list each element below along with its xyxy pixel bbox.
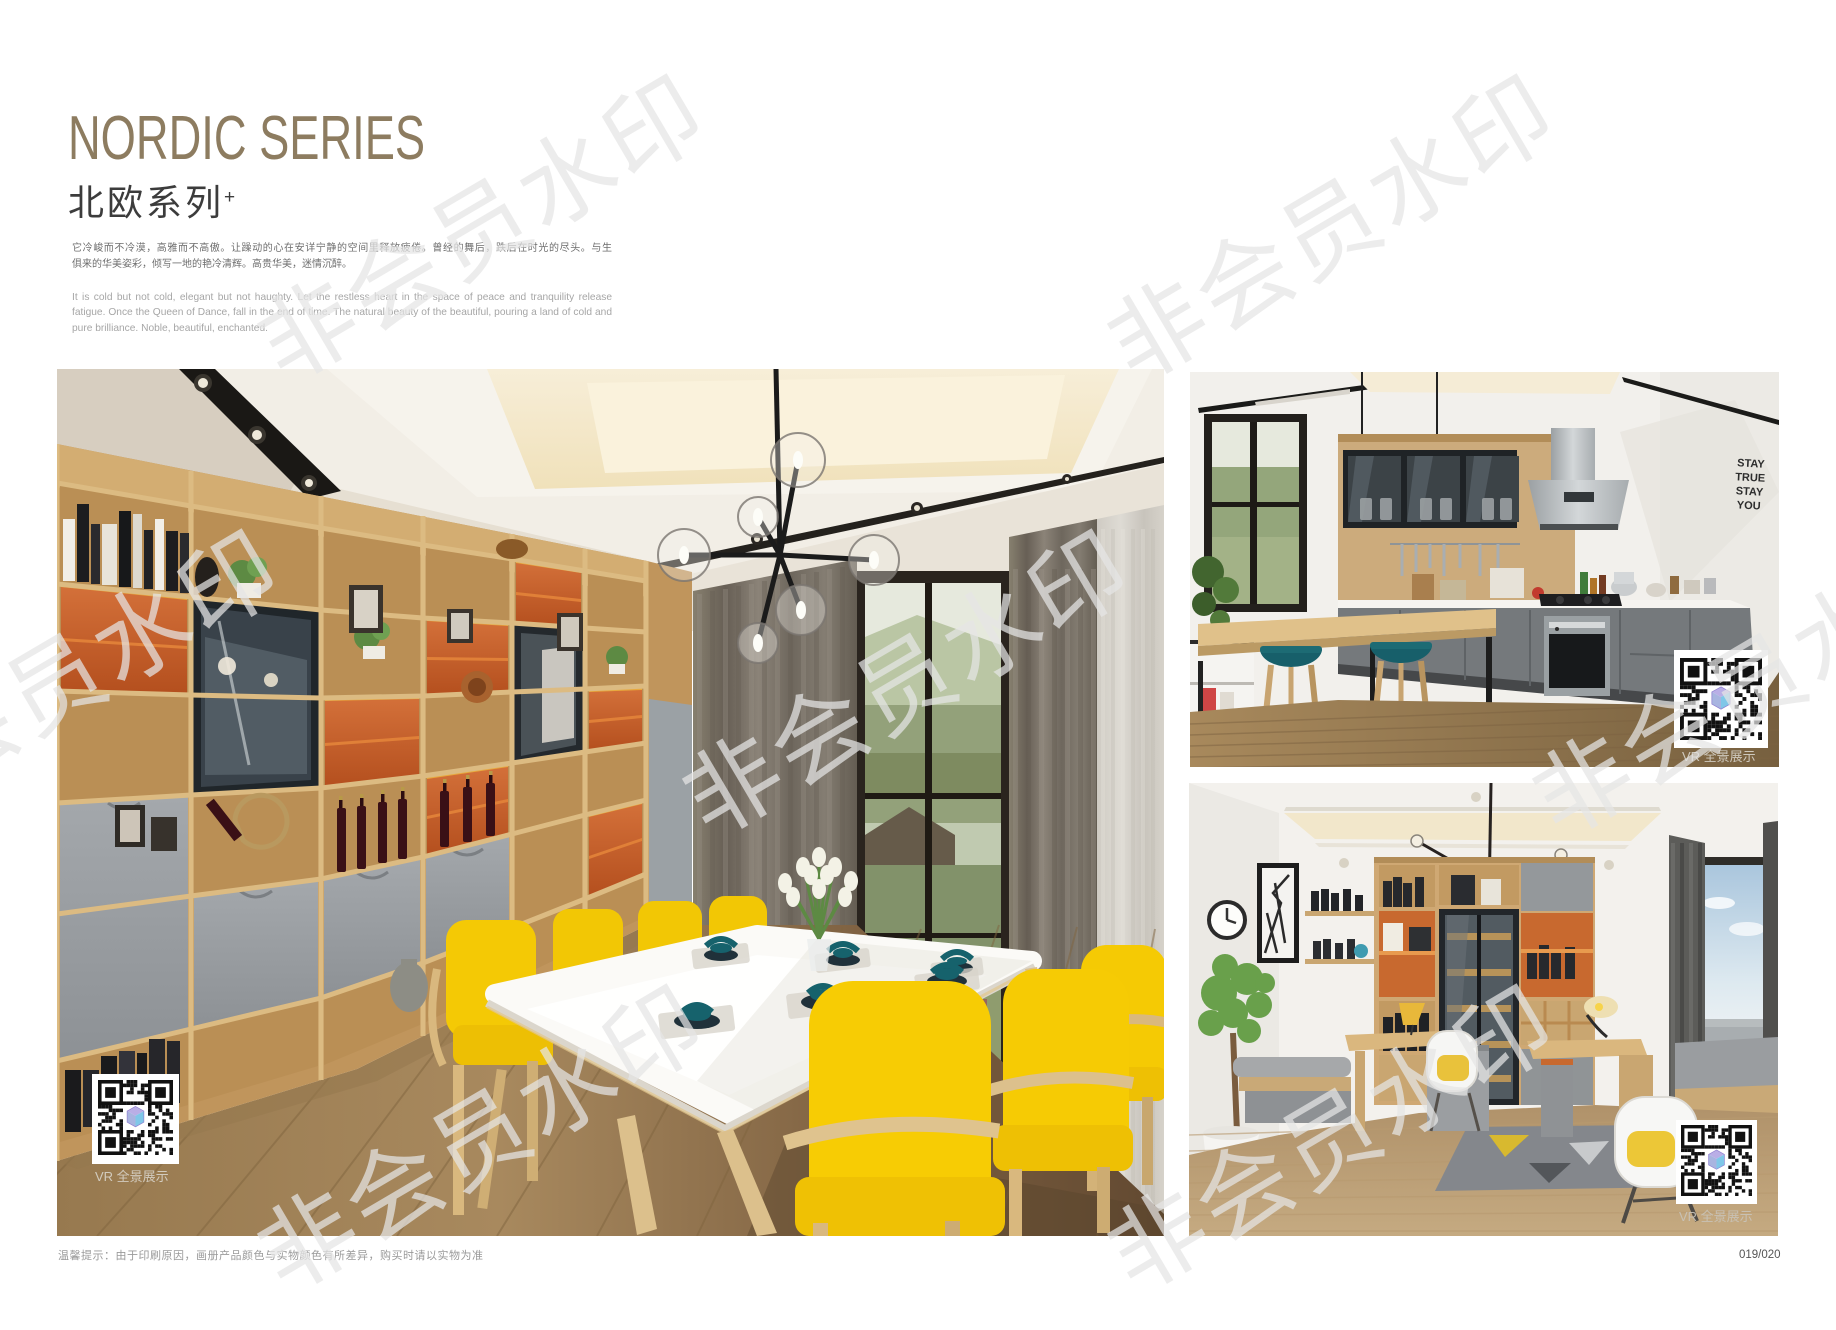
svg-text:STAY: STAY: [1737, 457, 1766, 470]
svg-text:VR 全景展示: VR 全景展示: [95, 1169, 169, 1184]
svg-text:YOU: YOU: [1737, 499, 1761, 512]
svg-text:VR 全景展示: VR 全景展示: [1679, 1209, 1753, 1224]
svg-text:TRUE: TRUE: [1735, 471, 1766, 485]
svg-text:STAY: STAY: [1735, 485, 1764, 498]
